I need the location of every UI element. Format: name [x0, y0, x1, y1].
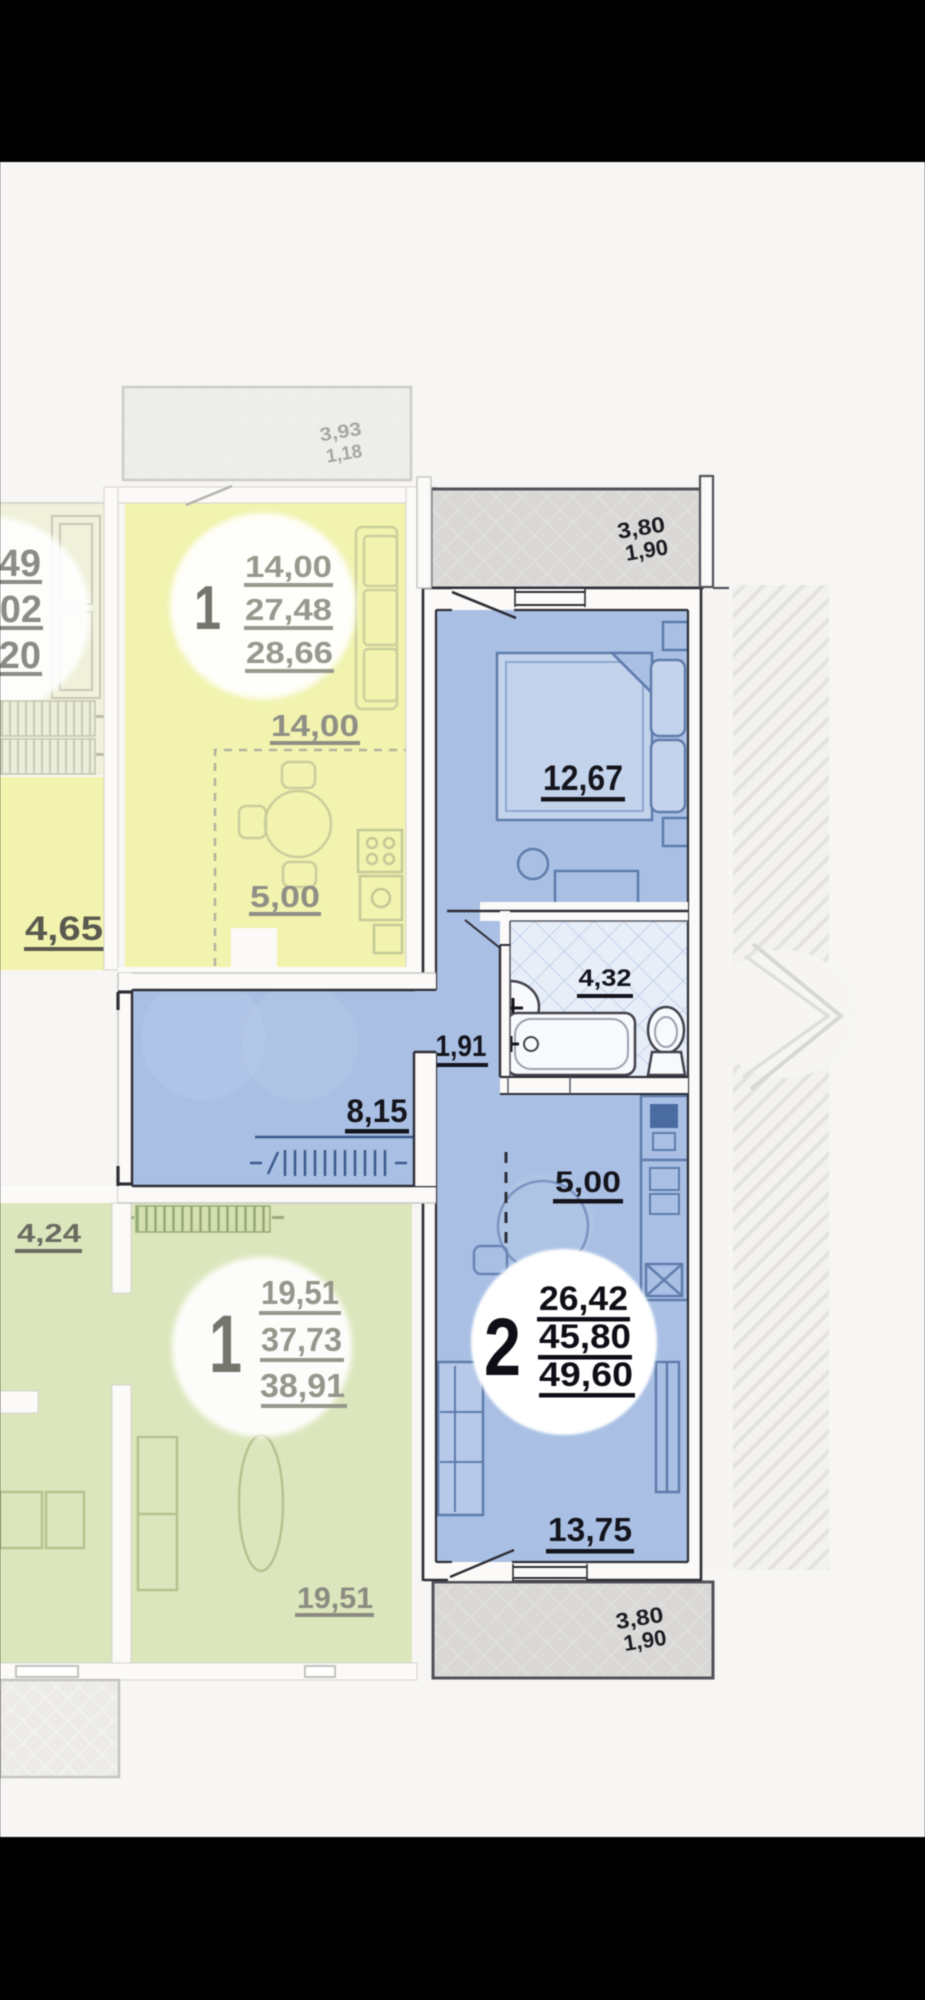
svg-text:26,42: 26,42 [539, 1280, 628, 1318]
svg-text:12,67: 12,67 [543, 759, 623, 798]
svg-text:49,60: 49,60 [539, 1356, 633, 1394]
svg-text:28,66: 28,66 [246, 635, 333, 670]
svg-text:4,65: 4,65 [25, 910, 103, 948]
svg-text:19,51: 19,51 [261, 1274, 339, 1311]
svg-text:02: 02 [0, 589, 42, 631]
svg-text:2: 2 [484, 1302, 521, 1393]
svg-text:14,00: 14,00 [271, 708, 359, 743]
svg-text:19,51: 19,51 [297, 1582, 373, 1615]
svg-text:37,73: 37,73 [261, 1321, 342, 1358]
svg-text:5,00: 5,00 [555, 1166, 621, 1199]
svg-text:1: 1 [194, 574, 221, 643]
svg-text:13,75: 13,75 [548, 1511, 632, 1548]
svg-text:4,24: 4,24 [17, 1218, 82, 1248]
svg-text:14,00: 14,00 [245, 549, 332, 584]
svg-text:49: 49 [0, 543, 41, 585]
svg-text:27,48: 27,48 [245, 592, 332, 627]
svg-text:1,91: 1,91 [436, 1030, 487, 1063]
svg-text:4,32: 4,32 [579, 965, 632, 992]
svg-text:20: 20 [0, 635, 41, 677]
svg-text:5,00: 5,00 [250, 879, 320, 914]
svg-text:8,15: 8,15 [347, 1093, 408, 1129]
svg-text:38,91: 38,91 [260, 1367, 345, 1404]
svg-text:1: 1 [209, 1299, 242, 1390]
svg-text:45,80: 45,80 [539, 1318, 631, 1356]
